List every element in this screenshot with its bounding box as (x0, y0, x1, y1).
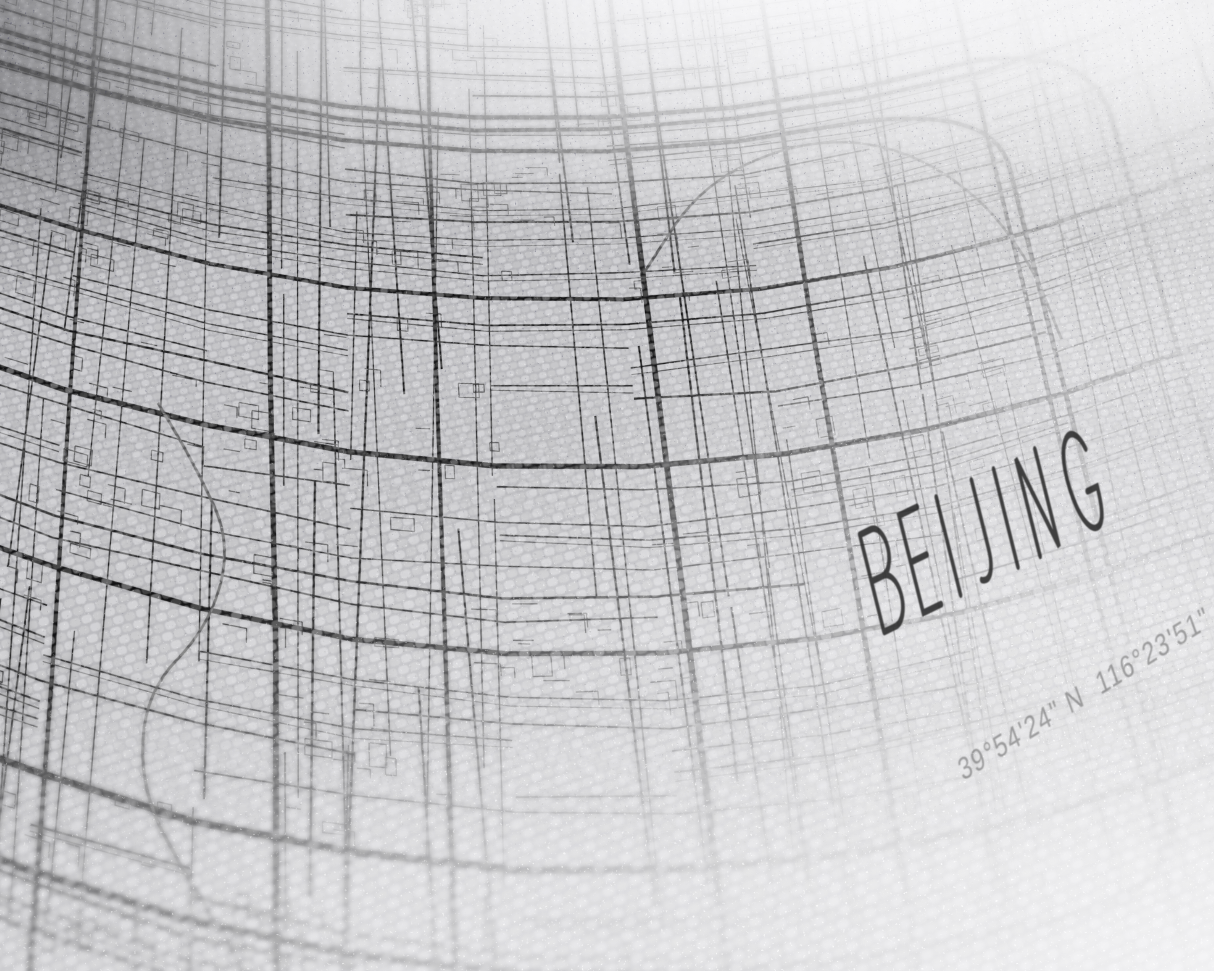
svg-text:39°54'24" N 116°23'51" E: 39°54'24" N 116°23'51" E (954, 586, 1214, 788)
